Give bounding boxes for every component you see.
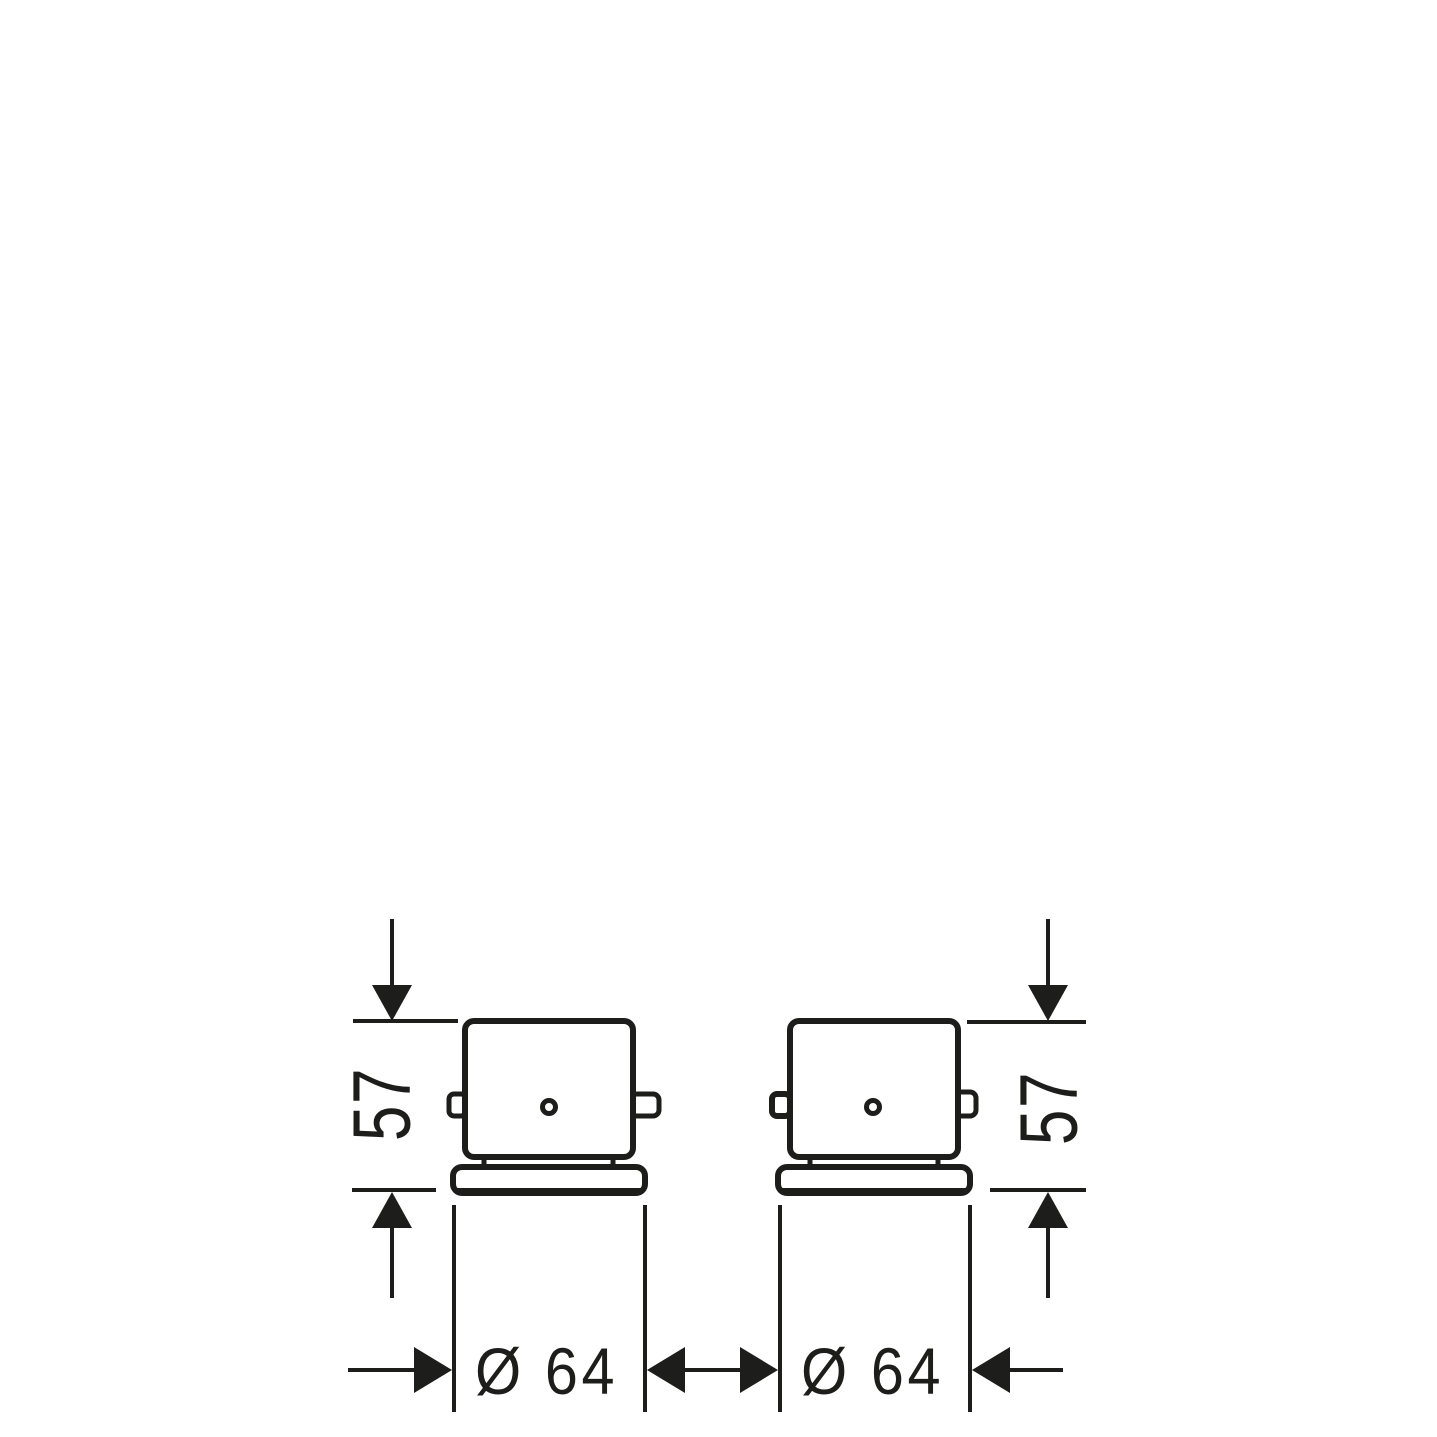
dimension-drawing: [0, 0, 1437, 1437]
center-distance-dimension: [647, 1347, 778, 1393]
arrow-right-icon: [740, 1347, 778, 1393]
arrow-up-icon: [372, 1192, 412, 1228]
right-handle-body: [790, 1021, 958, 1157]
arrow-down-icon: [372, 985, 412, 1021]
right-valve-handle: [772, 1021, 976, 1193]
arrow-right-icon: [414, 1347, 452, 1393]
right-diameter-dimension: [972, 1347, 1063, 1393]
left-height-dimension: [352, 919, 458, 1298]
arrow-up-icon: [1028, 1192, 1068, 1228]
right-handle-center-dot: [867, 1101, 880, 1114]
arrow-left-icon: [972, 1347, 1010, 1393]
left-diameter-dimension: [348, 1347, 452, 1393]
arrow-left-icon: [647, 1347, 685, 1393]
right-height-dimension: [967, 919, 1086, 1298]
left-handle-center-dot: [543, 1101, 556, 1114]
arrow-down-icon: [1028, 985, 1068, 1021]
left-handle-body: [465, 1021, 633, 1157]
technical-drawing-canvas: 57 57 Ø 64 Ø 64: [0, 0, 1437, 1437]
left-valve-handle: [449, 1021, 659, 1193]
diameter-extension-lines: [454, 1205, 970, 1412]
